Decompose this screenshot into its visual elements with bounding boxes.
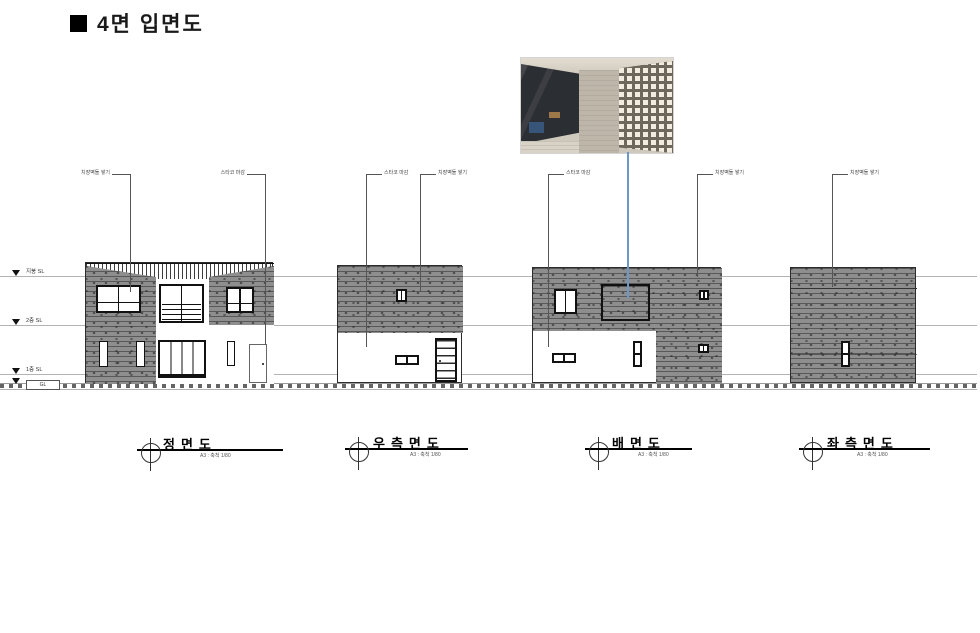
front-1f-slot-window-1 [99, 341, 108, 367]
rear-title: 배면도 [612, 433, 666, 452]
left-title: 좌측면도 [827, 433, 899, 452]
left-side-slot-window [841, 341, 850, 367]
sheet-title: 4면 입면도 [97, 8, 204, 38]
photo-perforated-screen [619, 61, 673, 153]
front-balcony-railing [162, 304, 201, 320]
roof-level-marker-icon [12, 270, 20, 276]
right-side-door-knob-icon [439, 360, 441, 362]
second-floor-label: 2층 SL [26, 316, 42, 324]
front-title: 정면도 [163, 434, 217, 453]
left-side-parapet-line [791, 288, 917, 289]
front-elevation [85, 262, 273, 383]
left-side-floor-line [791, 354, 917, 355]
leader-line-7 [832, 174, 833, 287]
front-door-knob-icon [262, 363, 264, 365]
material-callout-7: 치장벽돌 쌓기 [850, 169, 879, 176]
leader-line-3 [366, 174, 367, 347]
material-callout-4: 치장벽돌 쌓기 [438, 169, 467, 176]
material-callout-2: 스타코 마감 [197, 169, 245, 176]
material-callout-3: 스타코 마감 [384, 169, 408, 176]
left-side-elevation [790, 267, 916, 383]
leader-elbow-4 [420, 174, 436, 175]
material-callout-6: 치장벽돌 쌓기 [715, 169, 744, 176]
leader-elbow-2 [247, 174, 265, 175]
photo-reflection-blue [529, 122, 544, 133]
left-title-symbol-icon [803, 442, 823, 462]
left-title-scale: A3 : 축척 1/80 [857, 451, 888, 458]
leader-line-2 [265, 174, 266, 345]
right-title-scale: A3 : 축척 1/80 [410, 451, 441, 458]
leader-elbow-3 [366, 174, 382, 175]
material-callout-1: 치장벽돌 쌓기 [62, 169, 110, 176]
roof-level-label: 지붕 SL [26, 267, 44, 275]
front-1f-slot-window-3 [227, 341, 235, 366]
photo-dark-window [521, 64, 579, 144]
photo-reference-line [627, 152, 629, 298]
leader-line-1 [130, 174, 131, 292]
photo-brick-wall [579, 70, 619, 153]
front-1f-slot-window-2 [136, 341, 145, 367]
leader-elbow-5 [548, 174, 564, 175]
first-floor-marker-icon [12, 368, 20, 374]
detail-photo [520, 57, 674, 154]
front-2f-right-window [226, 287, 254, 313]
title-bullet-square-icon [70, 15, 87, 32]
ground-level-line [0, 389, 977, 390]
leader-line-4 [420, 174, 421, 292]
leader-line-6 [697, 174, 698, 277]
drawing-sheet: 4면 입면도 지붕 SL 2층 SL 1층 SL GL [0, 0, 980, 633]
rear-1f-right-small-window [698, 344, 709, 353]
rear-perforated-brick-screen [601, 284, 650, 321]
rear-1f-slot-window [633, 341, 642, 367]
front-sliding-door [158, 340, 206, 378]
leader-line-5 [548, 174, 549, 347]
rear-lower-right-brick-wall [656, 331, 722, 384]
rear-title-scale: A3 : 축척 1/80 [638, 451, 669, 458]
right-title-symbol-icon [349, 442, 369, 462]
second-floor-marker-icon [12, 319, 20, 325]
front-left-brick-wall [86, 266, 156, 384]
front-entry-door [249, 344, 267, 383]
right-side-upper-window [396, 289, 407, 302]
front-title-scale: A3 : 축척 1/80 [200, 452, 231, 459]
right-title: 우측면도 [373, 433, 445, 452]
right-side-elevation [337, 265, 462, 383]
sheet-header: 4면 입면도 [70, 8, 204, 38]
ground-level-marker-icon [12, 378, 20, 384]
first-floor-label: 1층 SL [26, 365, 42, 373]
photo-reflection-warm [549, 112, 560, 118]
photo-window-sill [521, 141, 579, 153]
right-side-slat-door [435, 338, 457, 382]
rear-title-symbol-icon [589, 442, 609, 462]
front-2f-left-window [96, 285, 141, 313]
right-side-lower-window [395, 355, 419, 365]
rear-2f-left-window [554, 289, 577, 314]
front-center-tall-window [159, 284, 204, 323]
leader-elbow-1 [112, 174, 130, 175]
rear-2f-right-small-window [699, 290, 709, 300]
ground-hatch [0, 384, 977, 388]
material-callout-5: 스타코 마감 [566, 169, 590, 176]
ground-level-label: GL [26, 380, 60, 390]
leader-elbow-7 [832, 174, 848, 175]
front-title-symbol-icon [141, 443, 161, 463]
leader-elbow-6 [697, 174, 713, 175]
rear-1f-left-window [552, 353, 576, 363]
